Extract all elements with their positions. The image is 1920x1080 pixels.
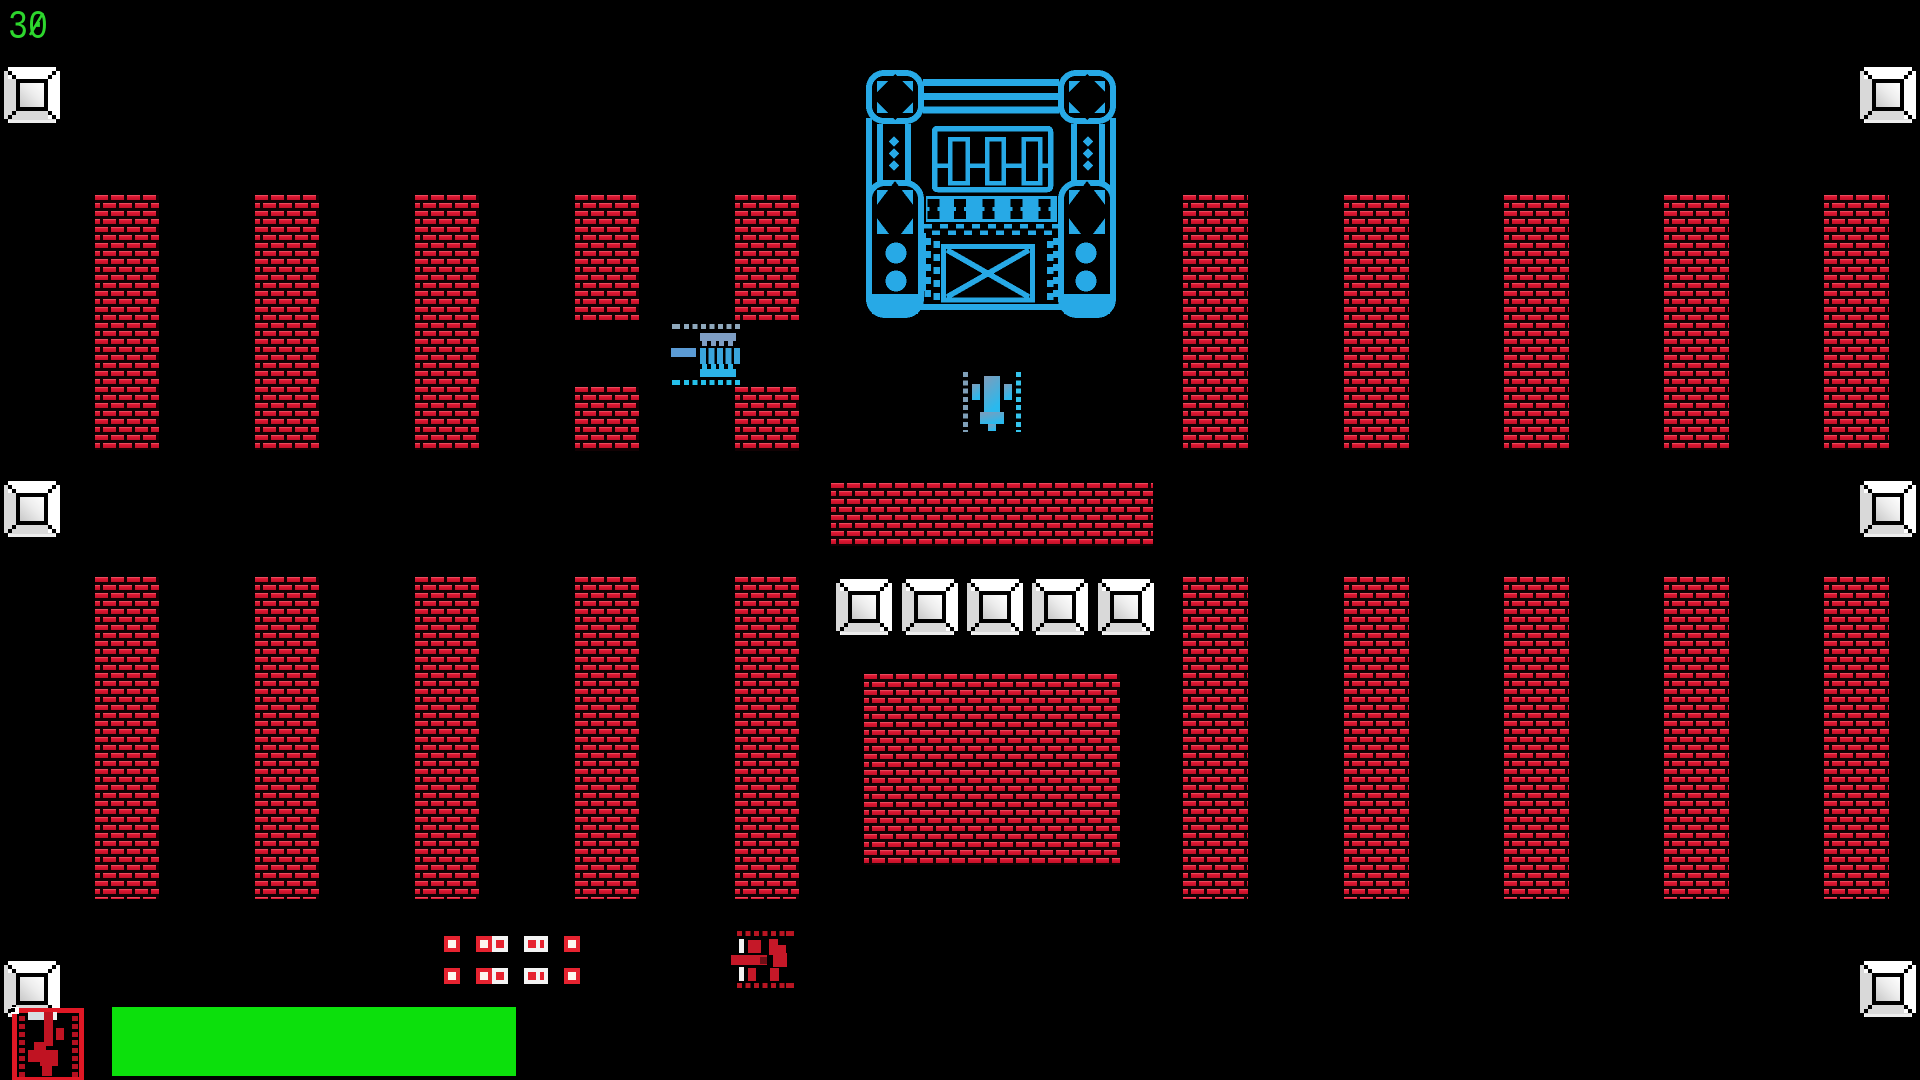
svg-text:30: 30	[8, 6, 48, 51]
